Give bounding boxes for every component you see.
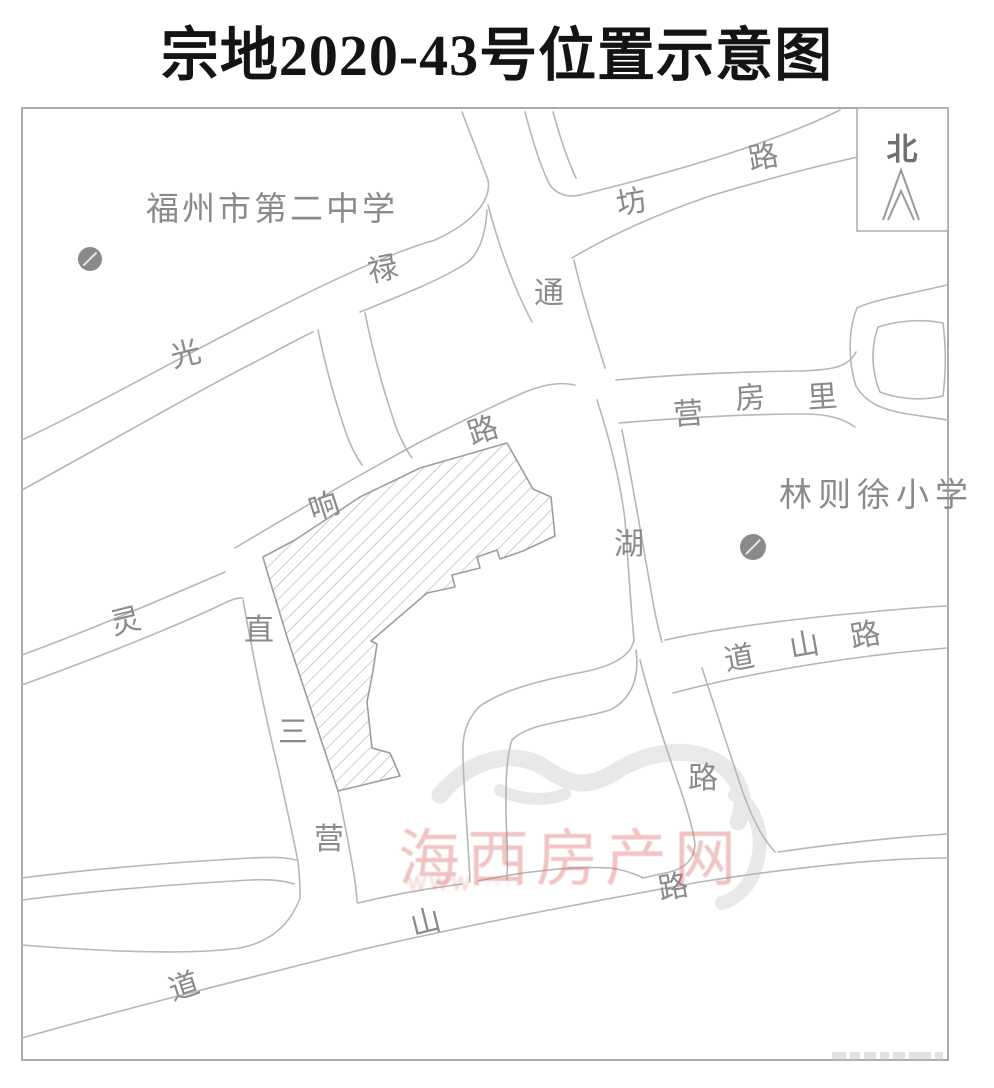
road-label: 通: [534, 277, 564, 310]
road-label: 直: [244, 614, 274, 647]
road-label: 里: [806, 380, 838, 415]
map-border: [22, 108, 948, 1060]
road-label: 路: [688, 762, 718, 795]
watermark-subtext: WWW·····: [408, 874, 628, 896]
road-label: 三: [278, 716, 308, 749]
compass-north-label: 北: [887, 132, 918, 167]
compass-box: [857, 108, 948, 231]
road-label: 房: [734, 381, 766, 416]
road-label: 湖: [614, 528, 644, 561]
road-label: 路: [746, 139, 781, 177]
road-label: 路: [848, 617, 883, 655]
page: 宗地2020-43号位置示意图: [0, 0, 994, 1088]
road-label: 山: [787, 627, 822, 665]
linzexu-primary-school-label: 林则徐小学: [779, 476, 974, 513]
road-label: 营: [672, 397, 704, 432]
road-label: 坊: [614, 184, 649, 222]
map-canvas: 北 光禄坊路通湖路响路灵直三营营房里道山路道山路福州市第二中学林则徐小学: [0, 0, 994, 1088]
fuzhou-no2-middle-school-label: 福州市第二中学: [146, 190, 398, 227]
road-label: 营: [314, 823, 344, 856]
compass: 北: [857, 108, 948, 231]
road-label: 道: [722, 640, 757, 678]
